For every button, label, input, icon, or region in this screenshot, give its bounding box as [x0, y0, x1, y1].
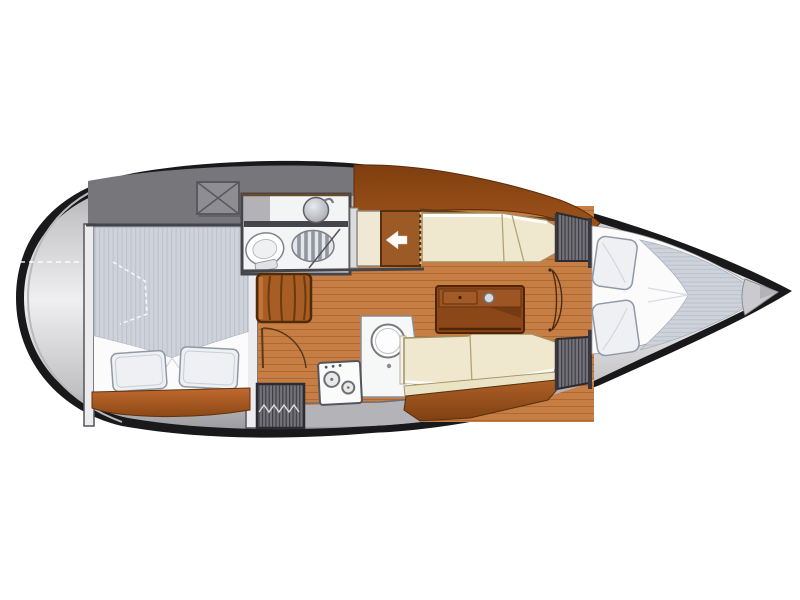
- icebox-counter: [357, 211, 382, 266]
- cockpit-locker-hatch: [197, 182, 241, 216]
- aft-cabin: [84, 224, 258, 428]
- floor-plan-canvas: [0, 0, 800, 600]
- aft-berth-step-shelf: [92, 388, 250, 417]
- companionway-entry: [381, 211, 421, 266]
- saloon-table: [436, 286, 524, 333]
- fwd-pillow-top: [592, 235, 639, 290]
- engine-hatch: [257, 384, 304, 428]
- shower-grating: [292, 230, 334, 262]
- saloon-aft-wall: [242, 269, 424, 271]
- stove: [318, 361, 362, 405]
- port-wardrobe: [557, 213, 589, 261]
- aft-cabin-doorway: [258, 324, 312, 382]
- aft-berth-mattress: [94, 227, 248, 358]
- head-divider-wall: [244, 221, 348, 227]
- fwd-pillow-bottom: [591, 299, 640, 356]
- table-cap: [484, 293, 494, 303]
- aft-pillow-right: [179, 347, 239, 390]
- head-floor: [244, 196, 270, 223]
- starboard-wardrobe: [557, 337, 589, 389]
- port-settee: [420, 210, 560, 262]
- yacht-floor-plan: { "diagram": { "type": "sailboat-interio…: [0, 0, 800, 600]
- head-compartment: [242, 194, 350, 274]
- companionway-steps: [257, 274, 311, 322]
- aft-pillow-left: [111, 350, 168, 392]
